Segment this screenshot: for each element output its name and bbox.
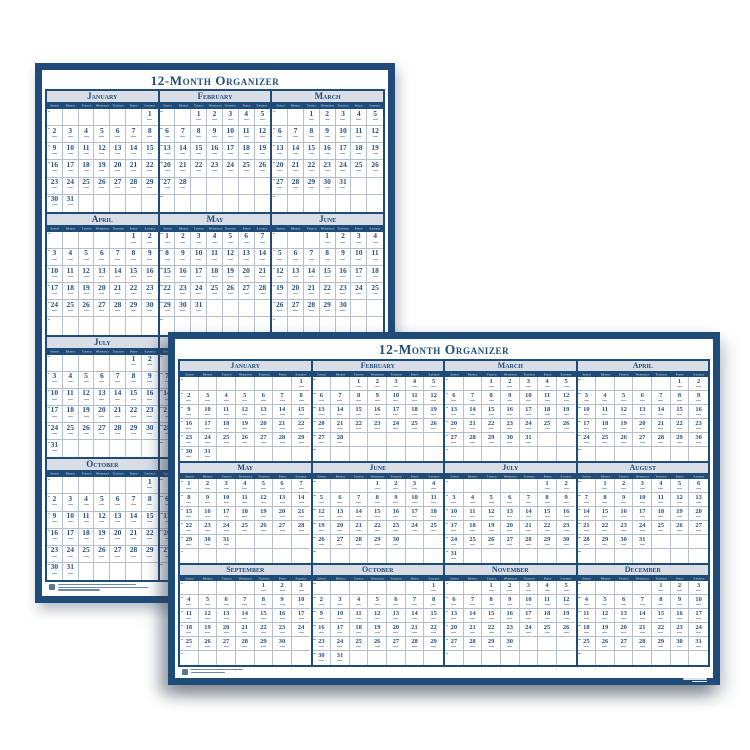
day-note-mark (319, 660, 324, 661)
day-number: 18 (544, 406, 551, 414)
day-note-mark (319, 442, 324, 443)
day-cell (406, 549, 425, 563)
day-note-mark (68, 433, 73, 434)
day-note-mark (602, 530, 607, 531)
day-note-mark (356, 530, 361, 531)
month-name-label: August (578, 463, 709, 474)
day-number: 2 (148, 232, 152, 241)
day-note-mark (196, 259, 201, 260)
day-cell: 19 (313, 521, 332, 535)
day-number: 21 (658, 420, 665, 428)
day-cell: 31 (63, 195, 79, 212)
day-note-mark (147, 556, 152, 557)
day-number: 12 (563, 392, 570, 400)
day-cell: 7 (288, 126, 304, 143)
day-number: 27 (393, 638, 400, 646)
day-note-mark (242, 618, 247, 619)
day-cell (273, 535, 292, 549)
day-number: 11 (211, 249, 218, 258)
day-cell: 5 (671, 479, 690, 493)
day-number: 15 (676, 406, 683, 414)
day-cell (94, 195, 110, 212)
day-cell: 19 (94, 529, 110, 546)
day-cell: 29 (142, 546, 158, 563)
day-number: 26 (488, 536, 495, 544)
day-number: 2 (508, 582, 511, 590)
day-note-mark (431, 618, 436, 619)
day-note-mark (224, 544, 229, 545)
day-note-mark (228, 259, 233, 260)
day-note-mark (412, 400, 417, 401)
day-cell (94, 232, 110, 249)
day-cell (615, 377, 634, 391)
day-note-mark (205, 632, 210, 633)
day-number: 30 (146, 424, 154, 433)
day-cell: 1 (596, 479, 615, 493)
day-note-mark (373, 136, 378, 137)
day-cell: 13 (239, 249, 255, 266)
day-cell (313, 581, 332, 595)
day-note-mark (340, 170, 345, 171)
day-note-mark (99, 433, 104, 434)
day-note-mark (131, 310, 136, 311)
day-cell: 25 (239, 160, 255, 177)
day-cell: 25 (596, 433, 615, 447)
day-number: 12 (98, 144, 106, 153)
day-number: 29 (676, 434, 683, 442)
day-note-mark (309, 259, 314, 260)
day-cell (464, 479, 483, 493)
day-note-mark (696, 502, 701, 503)
day-cell (482, 651, 501, 665)
day-note-mark (242, 516, 247, 517)
month-april: AprilSundayMondayTuesdayWednesdayThursda… (47, 214, 158, 335)
day-number: 18 (658, 508, 665, 516)
day-number: 9 (678, 596, 681, 604)
day-note-mark (325, 187, 330, 188)
day-note-mark (165, 242, 170, 243)
day-number: 30 (563, 536, 570, 544)
day-cell (255, 377, 274, 391)
day-cell: 27 (160, 178, 176, 195)
day-note-mark (99, 153, 104, 154)
day-cell: 28 (236, 637, 255, 651)
day-note-mark (186, 456, 191, 457)
month-name-label: January (180, 361, 311, 372)
day-cell (520, 479, 539, 493)
day-note-mark (584, 530, 589, 531)
day-cell: 21 (350, 521, 369, 535)
day-cell: 15 (596, 507, 615, 521)
day-number: 10 (195, 249, 203, 258)
day-note-mark (526, 442, 531, 443)
day-number: 30 (393, 536, 400, 544)
day-cell: 23 (501, 419, 520, 433)
day-number: 8 (432, 596, 435, 604)
day-cell: 15 (424, 609, 443, 623)
day-cell: 8 (482, 595, 501, 609)
day-number: 18 (583, 624, 590, 632)
day-cell: 21 (110, 406, 126, 423)
day-cell: 22 (482, 419, 501, 433)
day-note-mark (356, 502, 361, 503)
day-number: 7 (357, 494, 360, 502)
day-number: 5 (243, 392, 246, 400)
day-cell: 27 (255, 433, 274, 447)
day-note-mark (99, 381, 104, 382)
day-note-mark (224, 604, 229, 605)
day-cell: 29 (368, 535, 387, 549)
day-number: 6 (508, 494, 511, 502)
day-number: 17 (195, 267, 203, 276)
day-number: 12 (602, 610, 609, 618)
day-number: 29 (146, 546, 154, 555)
day-note-mark (470, 618, 475, 619)
day-cell: 15 (292, 405, 311, 419)
day-number: 8 (659, 596, 662, 604)
day-number: 5 (432, 378, 435, 386)
day-cell: 9 (557, 493, 576, 507)
month-name-label: July (445, 463, 576, 474)
day-cell: 11 (63, 389, 79, 406)
day-cell: 18 (652, 507, 671, 521)
day-cell: 19 (424, 405, 443, 419)
day-cell: 25 (406, 419, 425, 433)
day-number: 18 (82, 161, 90, 170)
day-number: 20 (318, 420, 325, 428)
day-number: 18 (544, 610, 551, 618)
day-number: 22 (130, 284, 138, 293)
day-note-mark (99, 399, 104, 400)
day-number: 27 (223, 638, 230, 646)
day-note-mark (658, 646, 663, 647)
day-note-mark (205, 488, 210, 489)
day-note-mark (640, 488, 645, 489)
day-number: 28 (241, 638, 248, 646)
day-cell: 26 (79, 423, 95, 440)
day-number: 6 (394, 596, 397, 604)
day-cell (367, 178, 383, 195)
day-cell: 28 (255, 283, 271, 300)
day-note-mark (696, 632, 701, 633)
day-number: 30 (323, 178, 331, 187)
day-cell (350, 549, 369, 563)
day-cell: 7 (464, 391, 483, 405)
day-number: 24 (223, 522, 230, 530)
day-cell: 16 (320, 143, 336, 160)
day-note-mark (621, 516, 626, 517)
day-cell: 9 (615, 493, 634, 507)
day-note-mark (337, 618, 342, 619)
day-cell: 16 (501, 405, 520, 419)
day-number: 29 (130, 424, 138, 433)
day-cell: 19 (615, 419, 634, 433)
day-cell: 19 (223, 266, 239, 283)
day-note-mark (640, 646, 645, 647)
day-cell: 26 (94, 546, 110, 563)
day-cell: 23 (47, 546, 63, 563)
day-number: 14 (525, 508, 532, 516)
day-cell: 19 (596, 623, 615, 637)
day-number: 15 (146, 144, 154, 153)
product-photo-canvas: 12-Month Organizer JanuarySundayMondayTu… (0, 0, 750, 750)
day-cell: 4 (239, 109, 255, 126)
day-number: 5 (100, 127, 104, 136)
day-cell: 11 (464, 507, 483, 521)
day-number: 23 (393, 522, 400, 530)
day-note-mark (99, 521, 104, 522)
day-cell (336, 195, 352, 212)
day-note-mark (431, 488, 436, 489)
day-cell: 20 (272, 160, 288, 177)
day-number: 6 (224, 596, 227, 604)
day-number: 27 (337, 536, 344, 544)
day-number: 20 (639, 420, 646, 428)
day-number: 9 (187, 406, 190, 414)
day-cell: 3 (336, 109, 352, 126)
day-note-mark (293, 259, 298, 260)
day-cell: 17 (445, 521, 464, 535)
day-note-mark (337, 502, 342, 503)
day-number: 25 (186, 638, 193, 646)
day-cell: 1 (255, 581, 274, 595)
day-cell (596, 377, 615, 391)
day-note-mark (165, 276, 170, 277)
day-cell: 20 (288, 283, 304, 300)
day-cell: 15 (126, 266, 142, 283)
day-cell (63, 355, 79, 372)
day-number: 15 (544, 508, 551, 516)
day-number: 25 (544, 420, 551, 428)
day-number: 29 (658, 638, 665, 646)
day-number: 12 (227, 249, 235, 258)
day-cell: 4 (63, 249, 79, 266)
day-cell: 14 (331, 405, 350, 419)
day-cell: 24 (47, 300, 63, 317)
day-note-mark (602, 488, 607, 489)
day-number: 21 (298, 508, 305, 516)
day-cell: 26 (367, 160, 383, 177)
day-number: 20 (242, 267, 250, 276)
day-number: 9 (341, 249, 345, 258)
fineprint-line (692, 681, 707, 682)
day-number: 10 (393, 392, 400, 400)
day-number: 29 (146, 178, 154, 187)
day-note-mark (340, 187, 345, 188)
day-note-mark (658, 590, 663, 591)
day-cell: 27 (445, 637, 464, 651)
day-note-mark (52, 504, 57, 505)
day-number: 22 (195, 161, 203, 170)
day-number: 27 (639, 434, 646, 442)
day-note-mark (131, 170, 136, 171)
day-number: 3 (206, 392, 209, 400)
day-cell: 24 (336, 160, 352, 177)
day-note-mark (621, 604, 626, 605)
day-cell: 21 (464, 419, 483, 433)
day-number: 6 (294, 249, 298, 258)
day-cell: 7 (464, 595, 483, 609)
day-note-mark (68, 187, 73, 188)
day-note-mark (319, 502, 324, 503)
day-cell (180, 581, 199, 595)
day-note-mark (186, 428, 191, 429)
day-number: 25 (82, 178, 90, 187)
day-note-mark (196, 170, 201, 171)
day-number: 13 (260, 406, 267, 414)
day-cell: 14 (464, 609, 483, 623)
day-cell: 23 (387, 521, 406, 535)
day-number: 9 (148, 249, 152, 258)
day-cell (482, 447, 501, 461)
day-cell: 3 (292, 581, 311, 595)
day-note-mark (602, 516, 607, 517)
day-note-mark (545, 530, 550, 531)
day-number: 31 (66, 563, 74, 572)
day-cell: 10 (217, 493, 236, 507)
day-number: 1 (262, 582, 265, 590)
day-note-mark (165, 187, 170, 188)
day-note-mark (356, 242, 361, 243)
day-number: 20 (98, 284, 106, 293)
day-cell: 24 (445, 535, 464, 549)
day-cell: 23 (199, 521, 218, 535)
day-cell: 26 (79, 300, 95, 317)
day-cell (557, 433, 576, 447)
month-june: JuneSundayMondayTuesdayWednesdayThursday… (313, 463, 444, 563)
day-note-mark (309, 293, 314, 294)
day-number: 25 (430, 522, 437, 530)
day-number: 4 (545, 582, 548, 590)
day-number: 23 (146, 284, 154, 293)
day-cell (110, 440, 126, 457)
day-number: 20 (292, 284, 300, 293)
day-number: 20 (98, 406, 106, 415)
day-number: 6 (280, 480, 283, 488)
day-cell (304, 232, 320, 249)
day-cell: 19 (671, 507, 690, 521)
day-cell: 1 (191, 109, 207, 126)
day-number: 22 (146, 161, 154, 170)
day-number: 13 (223, 610, 230, 618)
day-note-mark (84, 399, 89, 400)
day-note-mark (325, 310, 330, 311)
day-cell: 13 (313, 405, 332, 419)
day-cell: 9 (320, 126, 336, 143)
day-note-mark (451, 544, 456, 545)
day-note-mark (602, 502, 607, 503)
day-number: 10 (51, 267, 59, 276)
day-number: 10 (337, 610, 344, 618)
day-number: 28 (298, 522, 305, 530)
day-cell: 25 (351, 160, 367, 177)
day-number: 27 (260, 434, 267, 442)
day-number: 10 (227, 127, 235, 136)
day-cell (578, 447, 597, 461)
day-cell (255, 300, 271, 317)
day-cell: 27 (110, 178, 126, 195)
month-march: MarchSundayMondayTuesdayWednesdayThursda… (272, 91, 383, 212)
day-note-mark (584, 414, 589, 415)
day-note-mark (280, 400, 285, 401)
day-cell: 2 (557, 479, 576, 493)
day-cell (255, 178, 271, 195)
day-number: 5 (100, 495, 104, 504)
day-note-mark (52, 293, 57, 294)
day-cell (501, 479, 520, 493)
day-note-mark (299, 488, 304, 489)
day-number: 11 (186, 610, 192, 618)
day-cell (331, 447, 350, 461)
day-note-mark (242, 502, 247, 503)
day-cell (292, 535, 311, 549)
day-number: 16 (506, 406, 513, 414)
day-cell: 26 (557, 623, 576, 637)
day-number: 10 (695, 596, 702, 604)
day-cell: 13 (387, 609, 406, 623)
day-cell (578, 651, 597, 665)
day-note-mark (677, 442, 682, 443)
day-note-mark (131, 556, 136, 557)
day-note-mark (393, 428, 398, 429)
day-number: 22 (130, 406, 138, 415)
day-note-mark (584, 442, 589, 443)
day-cell: 11 (351, 126, 367, 143)
day-number: 26 (82, 424, 90, 433)
day-number: 25 (583, 638, 590, 646)
day-cell: 13 (445, 609, 464, 623)
day-note-mark (356, 400, 361, 401)
day-cell (110, 355, 126, 372)
day-number: 25 (469, 536, 476, 544)
day-cell (239, 195, 255, 212)
day-note-mark (68, 276, 73, 277)
day-cell: 8 (304, 126, 320, 143)
day-note-mark (261, 442, 266, 443)
day-note-mark (325, 276, 330, 277)
day-number: 20 (393, 624, 400, 632)
day-number: 8 (132, 249, 136, 258)
day-cell: 15 (142, 512, 158, 529)
day-cell: 30 (199, 535, 218, 549)
day-number: 9 (320, 610, 323, 618)
day-cell: 15 (160, 266, 176, 283)
day-cell (578, 377, 597, 391)
day-note-mark (52, 416, 57, 417)
day-cell: 3 (331, 595, 350, 609)
day-note-mark (260, 293, 265, 294)
day-note-mark (242, 428, 247, 429)
day-number: 17 (223, 508, 230, 516)
day-cell: 20 (615, 623, 634, 637)
day-cell: 5 (557, 377, 576, 391)
day-cell: 6 (313, 391, 332, 405)
day-cell: 7 (304, 249, 320, 266)
day-cell: 26 (615, 433, 634, 447)
day-note-mark (431, 590, 436, 591)
day-note-mark (412, 414, 417, 415)
day-cell: 6 (689, 479, 708, 493)
day-note-mark (186, 530, 191, 531)
day-note-mark (293, 153, 298, 154)
day-cell (126, 109, 142, 126)
day-cell (689, 447, 708, 461)
day-note-mark (621, 414, 626, 415)
day-cell: 23 (207, 160, 223, 177)
day-number: 22 (260, 624, 267, 632)
day-cell: 25 (217, 433, 236, 447)
day-number: 21 (130, 161, 138, 170)
